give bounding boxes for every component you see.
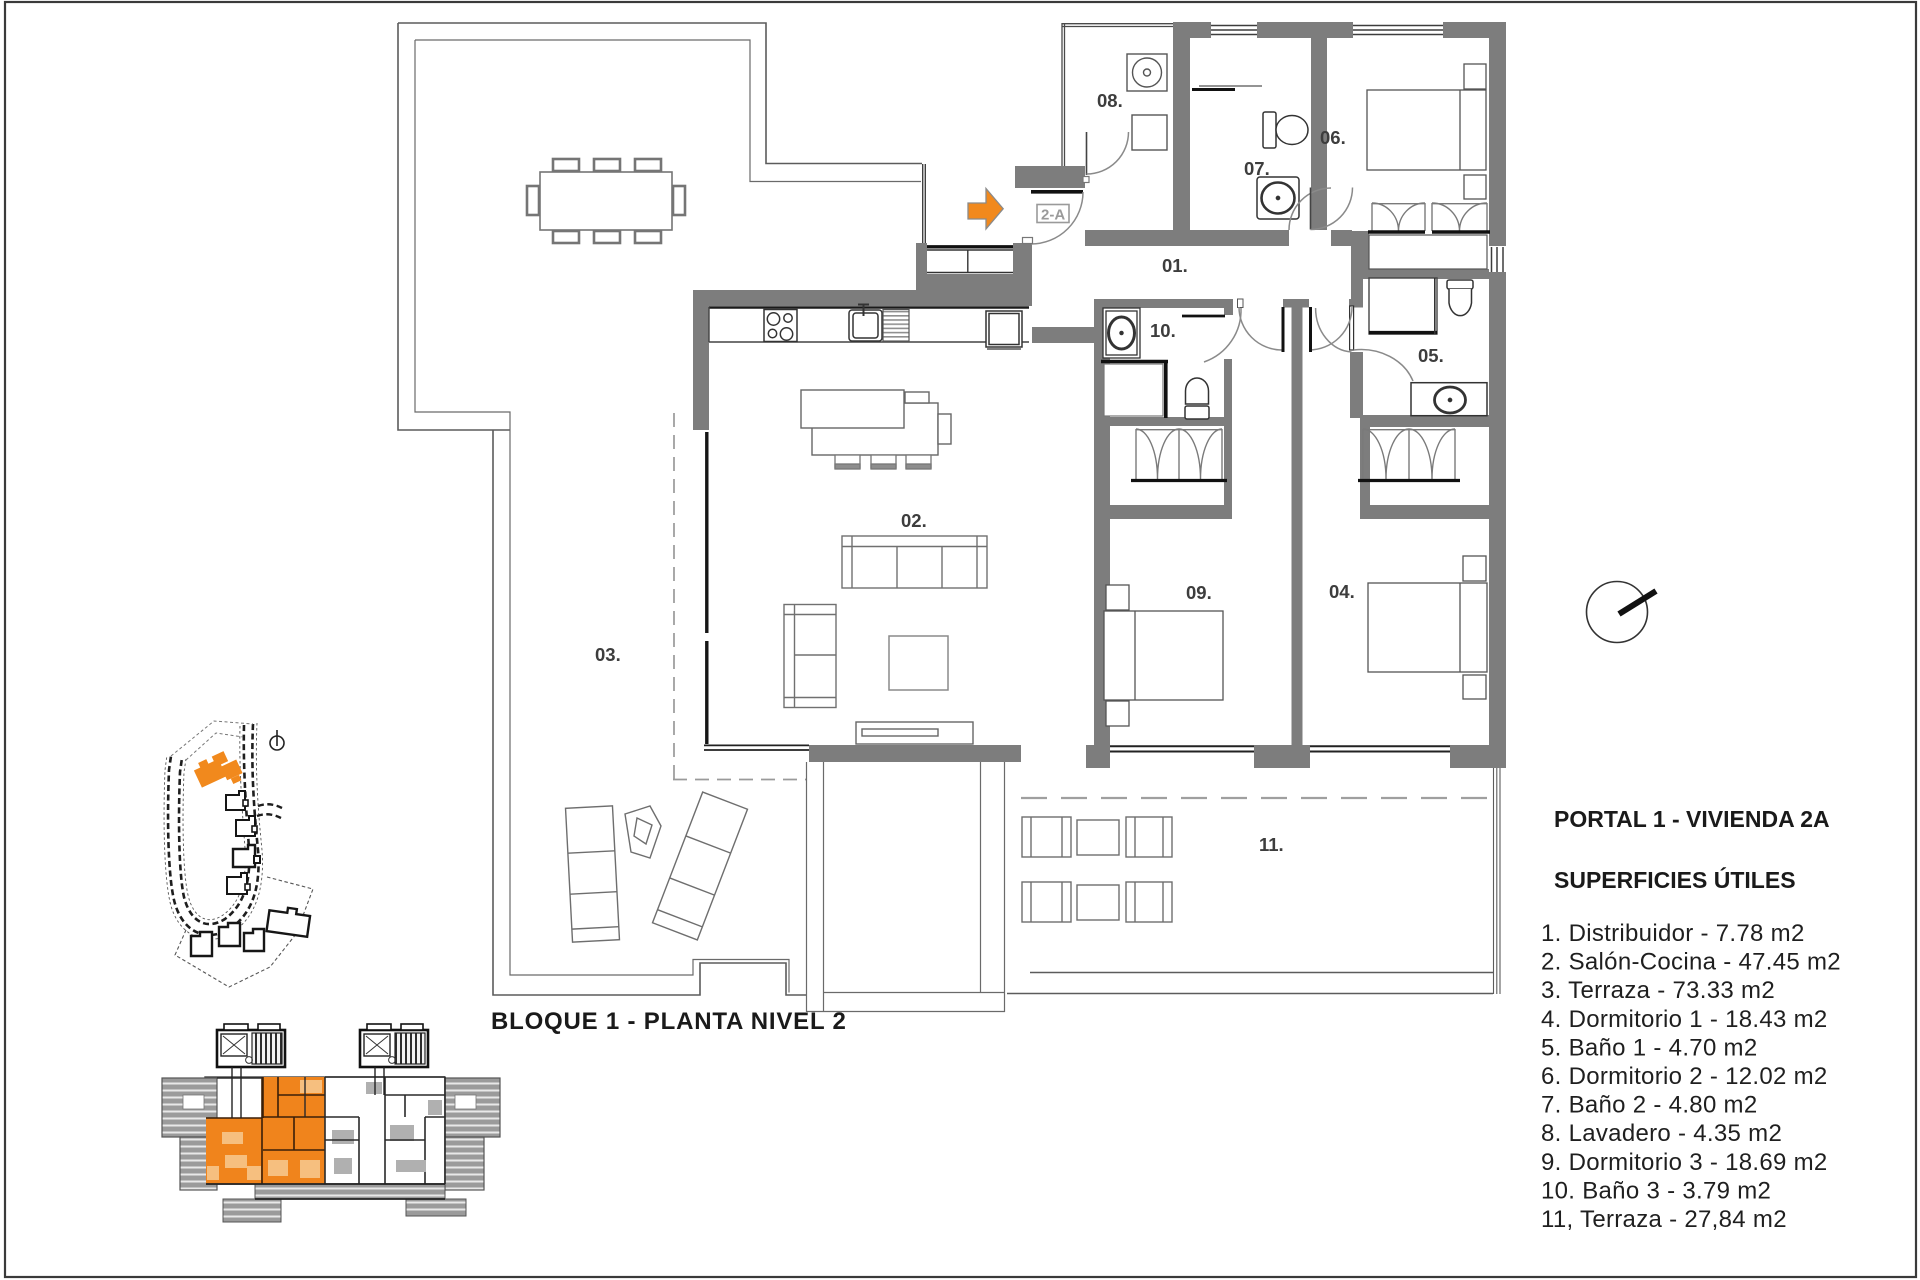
svg-text:04.: 04. (1329, 581, 1355, 602)
svg-text:5. Baño 1 - 4.70 m2: 5. Baño 1 - 4.70 m2 (1541, 1034, 1758, 1061)
svg-text:SUPERFICIES ÚTILES: SUPERFICIES ÚTILES (1554, 866, 1796, 893)
svg-text:05.: 05. (1418, 345, 1444, 366)
svg-text:3. Terraza - 73.33 m2: 3. Terraza - 73.33 m2 (1541, 977, 1775, 1004)
svg-text:07.: 07. (1244, 158, 1270, 179)
svg-text:06.: 06. (1320, 127, 1346, 148)
svg-text:11.: 11. (1259, 834, 1284, 855)
svg-text:2-A: 2-A (1041, 207, 1065, 224)
svg-text:2. Salón-Cocina - 47.45 m2: 2. Salón-Cocina - 47.45 m2 (1541, 949, 1841, 976)
svg-text:4. Dormitorio 1 - 18.43 m2: 4. Dormitorio 1 - 18.43 m2 (1541, 1006, 1828, 1033)
svg-text:10. Baño 3 - 3.79 m2: 10. Baño 3 - 3.79 m2 (1541, 1177, 1771, 1204)
svg-text:11, Terraza - 27,84 m2: 11, Terraza - 27,84 m2 (1541, 1206, 1787, 1233)
svg-text:10.: 10. (1150, 320, 1176, 341)
svg-text:PORTAL 1 - VIVIENDA 2A: PORTAL 1 - VIVIENDA 2A (1554, 806, 1830, 832)
svg-text:1. Distribuidor - 7.78 m2: 1. Distribuidor - 7.78 m2 (1541, 920, 1805, 947)
svg-text:03.: 03. (595, 644, 621, 665)
svg-text:BLOQUE 1 - PLANTA NIVEL 2: BLOQUE 1 - PLANTA NIVEL 2 (491, 1008, 847, 1035)
svg-text:6. Dormitorio 2 - 12.02 m2: 6. Dormitorio 2 - 12.02 m2 (1541, 1063, 1828, 1090)
svg-text:02.: 02. (901, 510, 927, 531)
svg-text:08.: 08. (1097, 90, 1123, 111)
svg-text:01.: 01. (1162, 255, 1188, 276)
svg-text:9. Dormitorio 3 - 18.69 m2: 9. Dormitorio 3 - 18.69 m2 (1541, 1149, 1828, 1176)
svg-text:7. Baño 2 - 4.80 m2: 7. Baño 2 - 4.80 m2 (1541, 1092, 1758, 1119)
svg-text:8. Lavadero - 4.35 m2: 8. Lavadero - 4.35 m2 (1541, 1120, 1782, 1147)
svg-text:09.: 09. (1186, 582, 1212, 603)
